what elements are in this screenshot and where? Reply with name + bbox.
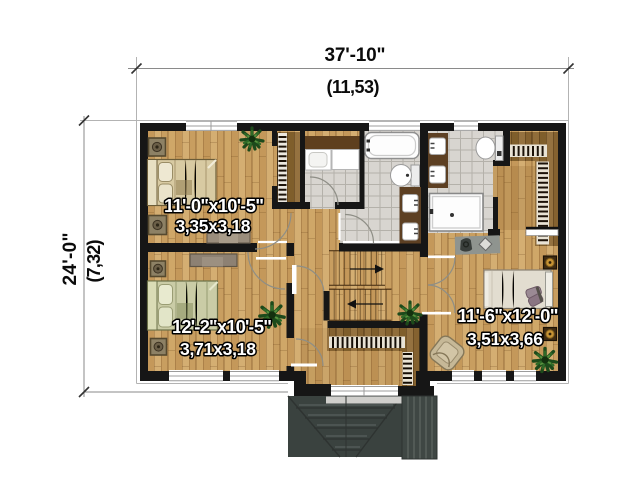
svg-text:3,51x3,66: 3,51x3,66: [467, 329, 543, 349]
svg-text:3,35x3,18: 3,35x3,18: [176, 216, 251, 236]
svg-text:(7,32): (7,32): [84, 240, 104, 283]
svg-text:11'-6"x12'-0": 11'-6"x12'-0": [458, 305, 559, 326]
svg-text:11'-0"x10'-5": 11'-0"x10'-5": [164, 195, 264, 216]
svg-text:24'-0": 24'-0": [60, 233, 81, 286]
svg-text:37'-10": 37'-10": [325, 45, 386, 66]
svg-text:12'-2"x10'-5": 12'-2"x10'-5": [172, 316, 272, 337]
svg-text:3,71x3,18: 3,71x3,18: [180, 339, 256, 359]
svg-text:(11,53): (11,53): [327, 77, 380, 97]
